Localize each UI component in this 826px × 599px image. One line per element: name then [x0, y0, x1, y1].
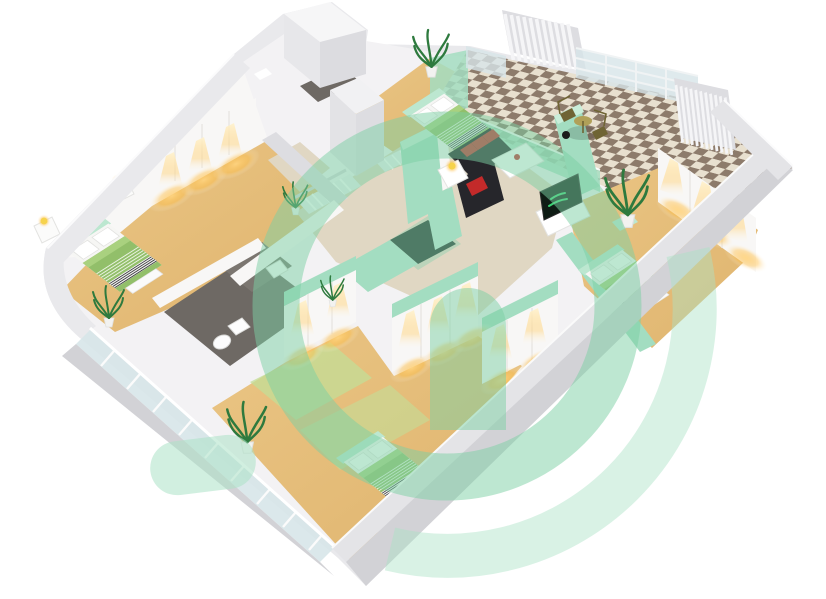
floor-plan-screenshot [0, 0, 826, 599]
watermark-arch [430, 288, 506, 430]
